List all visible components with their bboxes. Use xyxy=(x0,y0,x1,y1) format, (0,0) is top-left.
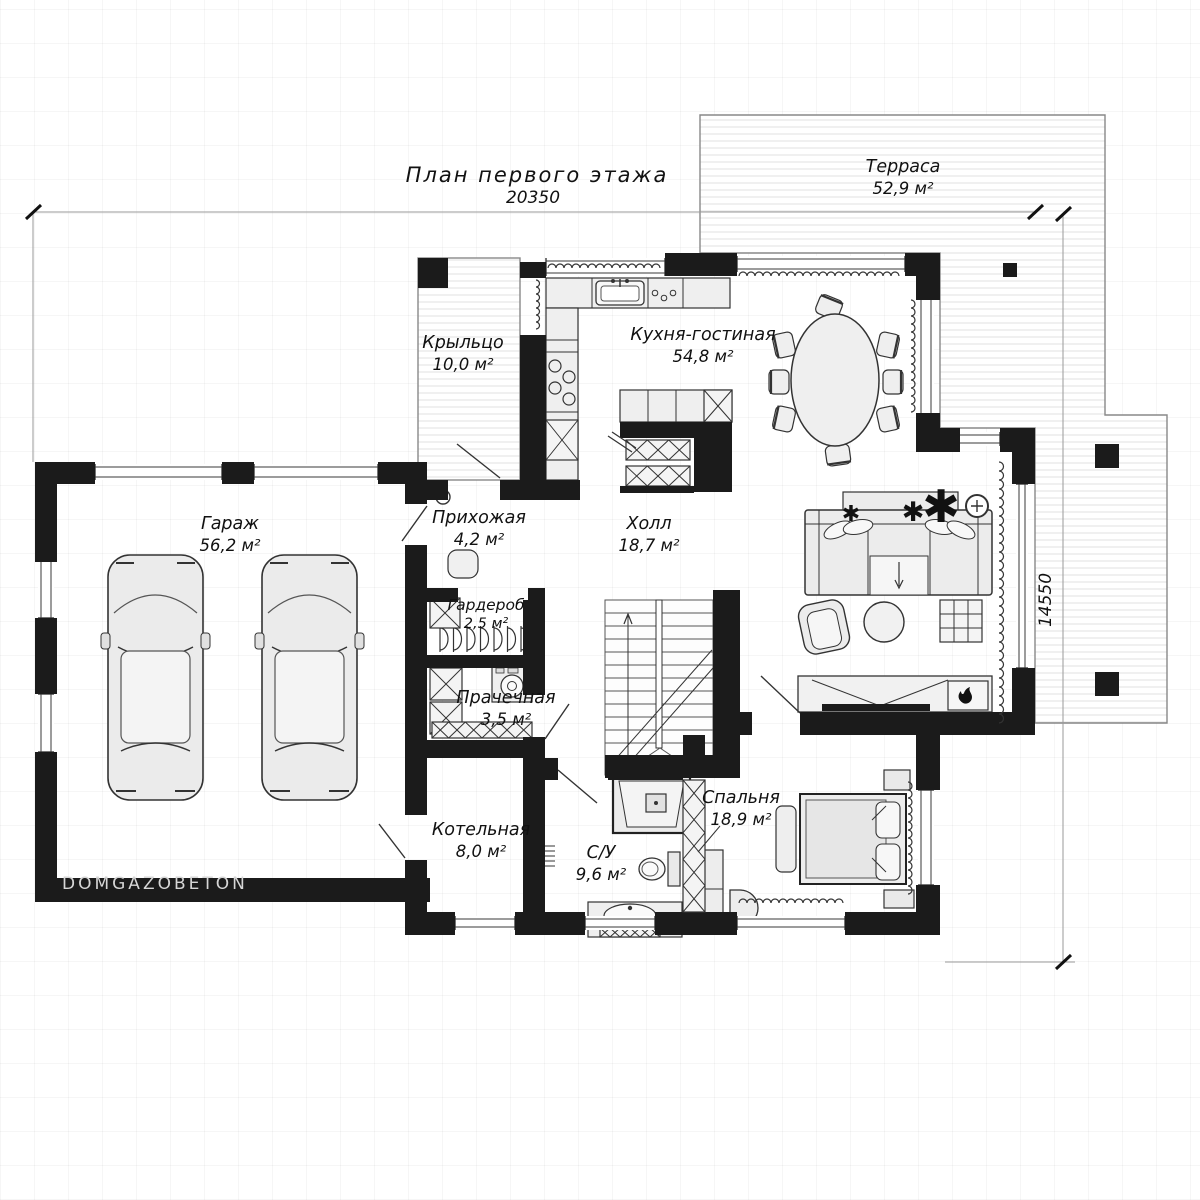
bed xyxy=(776,770,914,908)
room-label-porch: Крыльцо 10,0 м² xyxy=(422,333,503,376)
wall-clock-icon xyxy=(966,495,988,517)
plant-icon: ✱ ✱ ✱ xyxy=(842,480,960,533)
kitchen-island xyxy=(608,390,732,493)
room-label-kitchen-living: Кухня-гостиная 54,8 м² xyxy=(630,325,775,368)
room-label-entry: Прихожая 4,2 м² xyxy=(432,508,526,551)
dimension-width: 20350 xyxy=(506,188,560,208)
floor-plan-page: ✱ ✱ ✱ xyxy=(0,0,1200,1200)
room-label-garage: Гараж 56,2 м² xyxy=(199,514,260,557)
car-icon xyxy=(255,555,364,800)
room-label-terrace: Терраса 52,9 м² xyxy=(866,157,941,200)
sofa xyxy=(805,492,992,595)
toilet xyxy=(639,852,680,886)
room-label-boiler: Котельная 8,0 м² xyxy=(432,820,530,863)
tv-console xyxy=(798,676,992,712)
svg-text:✱: ✱ xyxy=(842,502,860,527)
room-label-laundry: Прачечная 3,5 м² xyxy=(456,688,555,731)
car-icon xyxy=(101,555,210,800)
dimension-height: 14550 xyxy=(1036,573,1056,627)
dining-table xyxy=(769,293,903,466)
room-label-wardrobe: Гардероб 2,5 м² xyxy=(447,596,524,634)
watermark-logo: DOMGAZOBETON xyxy=(62,874,248,894)
side-table xyxy=(940,600,982,642)
armchair xyxy=(796,598,851,656)
page-title: План первого этажа xyxy=(406,163,669,187)
room-label-bathroom: С/У 9,6 м² xyxy=(576,843,627,886)
radiator-icon xyxy=(545,846,555,866)
svg-text:✱: ✱ xyxy=(922,480,960,533)
pouf xyxy=(448,550,478,578)
coffee-table xyxy=(864,602,904,642)
svg-text:✱: ✱ xyxy=(902,497,925,528)
room-label-hall: Холл 18,7 м² xyxy=(618,514,679,557)
room-label-bedroom: Спальня 18,9 м² xyxy=(702,788,780,831)
shower xyxy=(613,775,694,833)
